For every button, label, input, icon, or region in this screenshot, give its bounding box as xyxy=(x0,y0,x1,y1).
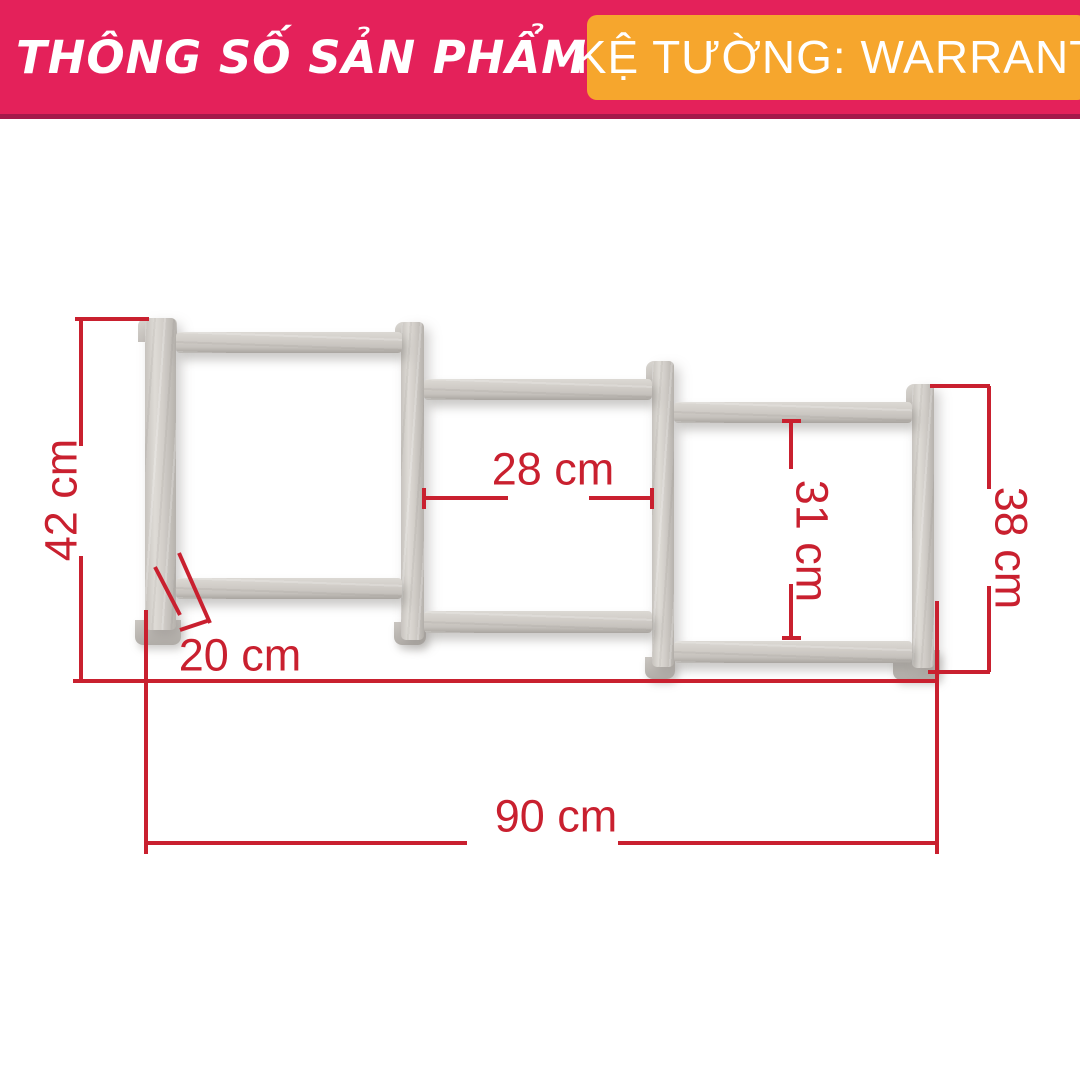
board-middle-vertical xyxy=(401,322,424,640)
board-left-vertical xyxy=(145,318,176,630)
dim-label-height-right: 38 cm xyxy=(989,487,1034,610)
shelf-middle-top xyxy=(424,379,652,400)
shelf-left-top xyxy=(176,332,402,353)
shelf-right-bottom xyxy=(674,641,912,663)
dim-label-width-total: 90 cm xyxy=(495,794,618,839)
shelf-middle-bottom xyxy=(424,611,652,633)
board-middle-right-vertical xyxy=(652,361,674,667)
dim-label-width-middle: 28 cm xyxy=(492,447,615,492)
dim-label-depth: 20 cm xyxy=(179,633,302,678)
dim-line-height-right-38 xyxy=(928,386,990,672)
shelf-right-top xyxy=(674,402,912,423)
dim-label-height-inner: 31 cm xyxy=(790,480,835,603)
shelf-diagram: 42 cm 28 cm 31 cm 38 cm 20 cm 90 cm xyxy=(0,0,1080,1080)
board-right-vertical xyxy=(912,384,934,668)
dim-label-height-left: 42 cm xyxy=(39,439,84,562)
shelf-left-bottom xyxy=(176,578,402,599)
